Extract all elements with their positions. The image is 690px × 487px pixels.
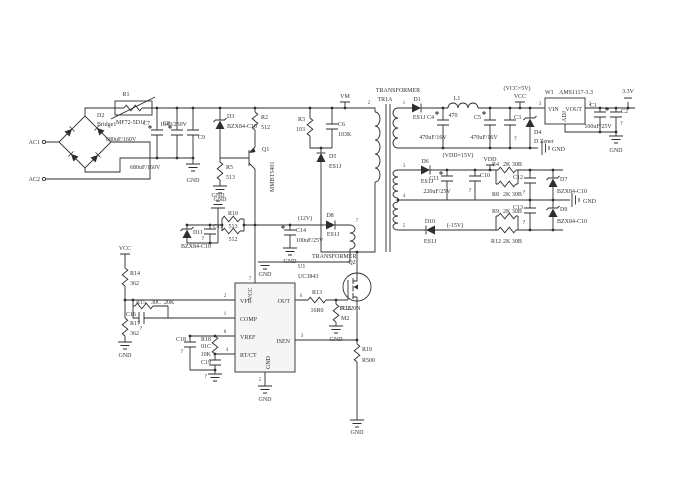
r5-ref: R5 (226, 165, 233, 171)
resistor-r4 (498, 167, 516, 173)
gnd-r16-label: GND (330, 337, 344, 343)
r4-value: 2K 30B (503, 162, 522, 168)
u1-pin-vref: VREF (240, 335, 256, 341)
w1-pin3: 3 (539, 102, 542, 107)
r17-value: 362 (130, 331, 139, 337)
r8-value: 2K 30B (503, 192, 522, 198)
d5-value: ES1J (329, 164, 342, 170)
c15-ref: C15 (213, 224, 223, 230)
gnd-symbol-c19 (208, 374, 222, 381)
d5-ref: D5 (329, 154, 336, 160)
transformer-label: TRANSFORMER (376, 88, 420, 94)
d4-ref: D4 (534, 130, 541, 136)
plus-c14 (281, 225, 285, 229)
gnd-12v-label: GND (212, 193, 226, 199)
c11-value: 220uF/25V (423, 189, 451, 195)
vdd15-label: (VDD=15V) (443, 152, 474, 159)
gnd-center-label: GND (583, 199, 597, 205)
gnd-symbol-center (572, 193, 579, 207)
v33-label: 3.3V (622, 89, 635, 95)
c3-value: ? (514, 136, 517, 142)
sec3-pin5: 5 (403, 224, 406, 229)
vcc5-label: (VCC=5V) (503, 85, 530, 92)
c5-ref: C5 (474, 115, 481, 121)
gnd-r19-label: GND (351, 430, 365, 436)
c8-value: 680uF/160V (130, 165, 161, 171)
c6-value: 103K (338, 132, 352, 138)
diode-d10 (426, 226, 435, 235)
c14-ref: C14 (296, 228, 306, 234)
neg15-label: (-15V) (447, 222, 463, 229)
u1-pin-out: OUT (278, 299, 291, 305)
ac1-label: AC1 (29, 140, 40, 146)
c7-value: 680uF/160V (106, 137, 137, 143)
gnd-symbol-aux (258, 262, 272, 269)
plus-c4 (435, 111, 439, 115)
d8-ref: D8 (326, 213, 333, 219)
gnd-aux-label: GND (259, 272, 273, 278)
d6-ref: D6 (421, 159, 428, 165)
gnd-symbol-ams (609, 136, 623, 143)
r18-code: 01C (201, 344, 211, 350)
r13-ref: R13 (312, 290, 322, 296)
c1-value: 100uF/25V (584, 124, 612, 130)
ac1-terminal (42, 140, 45, 143)
q2-ref: Q2 (348, 260, 355, 266)
c16-value: ? (140, 326, 143, 332)
capacitor-c13 (524, 208, 536, 213)
c5-value: 470uF/16V (470, 135, 498, 141)
c6-ref: C6 (338, 122, 345, 128)
gnd-symbol-r16 (329, 326, 343, 333)
zener-d3 (214, 118, 227, 129)
l1-ref: L1 (454, 96, 461, 102)
c3-ref: C3 (514, 115, 521, 121)
resistor-r19 (354, 344, 360, 362)
c13-value: ? (523, 220, 526, 226)
gnd-symbol-r5 (213, 186, 227, 193)
transistor-q1 (249, 147, 256, 169)
r5-value: 513 (226, 175, 235, 181)
capacitor-c4 (437, 120, 449, 125)
vcc-flag-label: VCC (514, 94, 526, 100)
ac2-terminal (42, 177, 45, 180)
v12-label: (12V) (298, 215, 312, 222)
plus-c11 (439, 171, 443, 175)
d3-value: BZX84-C10 (227, 124, 257, 130)
d1-value: ES1J (413, 115, 426, 121)
u1-ref: U1 (298, 264, 305, 270)
capacitor-c7 (151, 130, 163, 135)
r3-ref: R3 (298, 117, 305, 123)
r12-value: 2K 30B (503, 239, 522, 245)
r12-ref: R12 (491, 239, 501, 245)
d9-ref: D9 (560, 207, 567, 213)
plus-c5 (482, 111, 486, 115)
capacitor-c1 (594, 112, 606, 117)
d11-ref: D11 (193, 230, 203, 236)
ac2-label: AC2 (29, 177, 40, 183)
sec1-pin1: 1 (403, 101, 406, 106)
q1-ref: Q1 (262, 147, 269, 153)
r13-value: 16R0 (310, 308, 323, 314)
d7-value: BZX84-C10 (557, 189, 587, 195)
c2-value: ? (620, 121, 623, 127)
aux-pin7: 7 (356, 219, 359, 224)
u1-pin4: 4 (226, 348, 229, 353)
diode-d5 (317, 153, 326, 162)
gnd-ams-label: GND (610, 148, 624, 154)
center-pin4: 4 (403, 194, 406, 199)
d2-value: Bridge1 (97, 122, 116, 128)
c15-value: ? (202, 236, 205, 242)
w1-ref: W1 (545, 90, 554, 96)
resistor-r13 (308, 297, 326, 303)
r16-value: M2 (341, 316, 349, 322)
l1-value: 470 (449, 113, 458, 119)
r1-value: MF72-5D11 (116, 120, 146, 126)
capacitor-c8 (171, 130, 183, 135)
resistor-r5 (217, 162, 223, 180)
c4-value: 470uF/16V (419, 135, 447, 141)
d3-ref: D3 (227, 114, 234, 120)
r15-value: 20K (164, 300, 175, 306)
r15-ref: R15 (136, 300, 146, 306)
resistor-r17 (122, 318, 128, 336)
c7-ref: C7 (143, 121, 150, 127)
d7-ref: D7 (560, 177, 567, 183)
d9-value: BZX84-C10 (557, 219, 587, 225)
d2-ref: D2 (97, 113, 104, 119)
w1-value: AMS1117-3.3 (559, 90, 593, 96)
w1-pin-vin: VIN (548, 107, 559, 113)
capacitor-c6 (326, 124, 338, 129)
c12-ref: C12 (513, 175, 523, 181)
gnd-symbol-u1 (258, 386, 272, 393)
r2-ref: R2 (261, 115, 268, 121)
u1-pin8: 8 (224, 330, 227, 335)
resistor-r10 (222, 216, 240, 222)
r4-ref: R4 (492, 162, 499, 168)
diode-d8 (326, 221, 335, 230)
gnd-d4-label: GND (552, 147, 566, 153)
capacitor-c12 (524, 178, 536, 183)
gnd-c14-label: GND (284, 259, 298, 265)
zener-d11 (181, 227, 194, 238)
u1-pin-comp: COMP (240, 317, 258, 323)
c1-ref: C1 (590, 103, 597, 109)
diode-d6 (421, 166, 430, 175)
r19-value: R500 (362, 358, 375, 364)
pri-pin2: 2 (368, 101, 371, 106)
c10-ref: C10 (480, 173, 490, 179)
r18-ref: R18 (201, 337, 211, 343)
q2-value: FU220N (339, 306, 361, 312)
capacitor-c14 (284, 230, 296, 235)
u1-pin-vcc: VCC (248, 288, 254, 300)
r10-ref: R10 (228, 211, 238, 217)
zener-d4 (524, 116, 537, 127)
resistor-r18 (212, 336, 218, 354)
gnd-symbol-c14 (283, 248, 297, 255)
capacitor-c11 (441, 176, 453, 181)
d8-value: ES1J (327, 232, 340, 238)
capacitor-c5 (484, 120, 496, 125)
u1-value: UC3843 (298, 274, 318, 280)
resistor-r12 (498, 227, 516, 233)
c19-ref: C19 (201, 360, 211, 366)
c18-ref: C18 (176, 337, 186, 343)
r3-value: 103 (296, 127, 305, 133)
sec2-pin3: 3 (403, 164, 406, 169)
d11-value: BZX84-C10 (181, 244, 211, 250)
c13-ref: C13 (513, 205, 523, 211)
r8-ref: R8 (492, 192, 499, 198)
mosfet-q2 (343, 273, 371, 301)
c16-ref: C16 (126, 312, 136, 318)
gnd-r17-label: GND (119, 353, 133, 359)
c18-value: ? (180, 349, 183, 355)
gnd-symbol-c9 (186, 164, 200, 171)
gnd-symbol-r17 (118, 342, 132, 349)
thermistor-r1 (111, 97, 155, 119)
gnd-symbol-r19 (350, 420, 364, 427)
resistor-r3 (307, 118, 313, 136)
schematic: AC1 AC2 R1 MF72-5D11 D2 Bridge1 C7 680uF… (0, 0, 690, 487)
r19-ref: R19 (362, 347, 372, 353)
diode-d1 (412, 104, 421, 113)
c9-value: 1043/250V (160, 122, 188, 128)
r15-code: 30C (151, 300, 161, 306)
q1-value: MMBT5401 (270, 162, 276, 192)
gnd-c9-label: GND (187, 178, 201, 184)
c19-value: ? (204, 374, 207, 380)
r17-ref: R17 (130, 321, 140, 327)
schematic-page: AC1 AC2 R1 MF72-5D11 D2 Bridge1 C7 680uF… (0, 0, 690, 487)
c9-ref: C9 (198, 135, 205, 141)
c4-ref: C4 (427, 115, 434, 121)
u1-pin1: 1 (224, 312, 227, 317)
w1-pin-adj: ADJ (562, 110, 568, 122)
c2-ref: C2 (621, 109, 628, 115)
resistor-r14 (122, 268, 128, 286)
d1-ref: D1 (413, 97, 420, 103)
zener-d7 (547, 176, 560, 187)
c10-value: ? (469, 188, 472, 194)
transformer-tr1a (350, 104, 398, 252)
transformer-name: TR1A (378, 97, 394, 103)
vcc-left-label: VCC (119, 246, 131, 252)
u1-pin2: 2 (224, 294, 227, 299)
resistor-r16 (333, 304, 339, 322)
r14-value: 362 (130, 281, 139, 287)
r9-ref: R9 (492, 209, 499, 215)
c11-ref: C11 (429, 176, 439, 182)
u1-pin-isen: ISEN (277, 339, 291, 345)
vm-label: VM (340, 94, 350, 100)
c12-value: ? (523, 190, 526, 196)
r14-ref: R14 (130, 271, 140, 277)
r10-value: 513 (229, 224, 238, 230)
u1-pin3: 3 (301, 334, 304, 339)
u1-pin-gnd: GND (266, 355, 272, 369)
u1-pin6: 6 (300, 294, 303, 299)
u1-pin7: 7 (249, 277, 252, 282)
d10-ref: D10 (425, 219, 435, 225)
r1-ref: R1 (122, 92, 129, 98)
r11-value: 512 (229, 237, 238, 243)
gnd-u1-label: GND (259, 397, 273, 403)
u1-pin-rtct: RT/CT (240, 353, 257, 359)
d4-value: D Zener (534, 139, 554, 145)
resistor-r8 (498, 181, 516, 187)
u1-pin5: 5 (259, 378, 262, 383)
r18-value: 10K (201, 352, 212, 358)
zener-d9 (547, 206, 560, 217)
c14-value: 100uF/25V (296, 238, 324, 244)
inductor-l1 (448, 103, 478, 108)
d10-value: ES1J (424, 239, 437, 245)
r2-value: 512 (261, 125, 270, 131)
